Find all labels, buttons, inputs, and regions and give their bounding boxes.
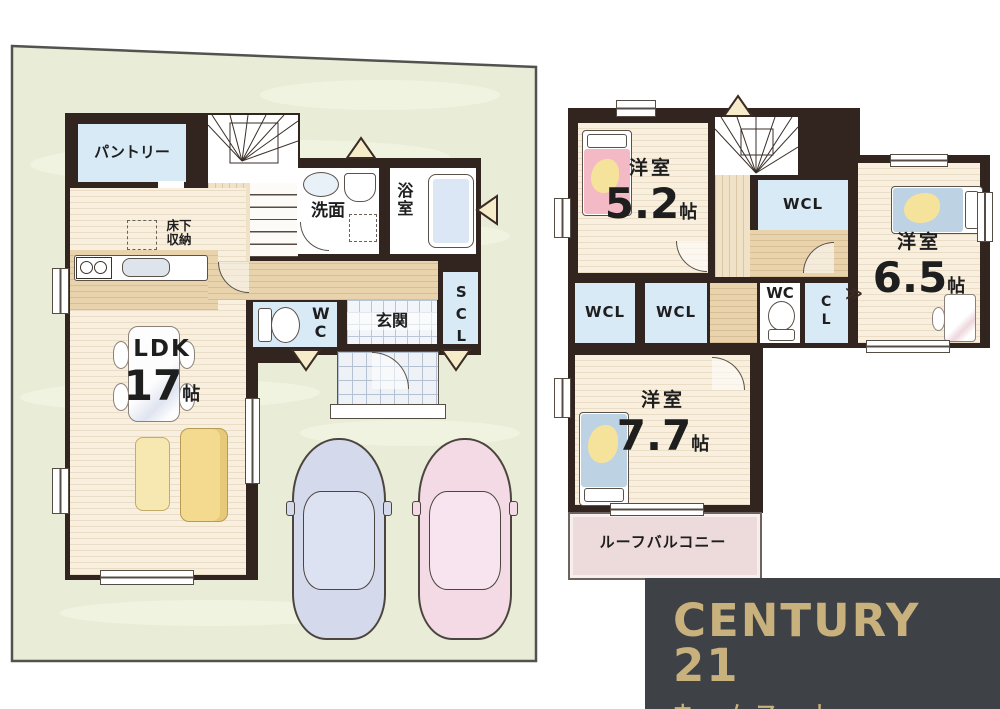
ldk-size: 17 (124, 361, 182, 410)
bedroom-6-5-label: 洋室 6.5帖 (866, 232, 972, 302)
floor-plan-sheet: パントリー 床下 収納 (0, 0, 1000, 709)
wcl-a-label: WCL (575, 304, 635, 321)
vent-triangle-icon (290, 348, 322, 372)
window (554, 378, 571, 418)
bed-icon (891, 186, 983, 234)
washroom-label: 洗面 (297, 202, 359, 222)
window (890, 154, 948, 167)
bedroom-7-7-name: 洋室 (608, 390, 718, 412)
bedroom-7-7-label: 洋室 7.7帖 (608, 390, 718, 460)
bathtub-icon (428, 174, 474, 248)
ldk-name: LDK (112, 336, 212, 362)
desk-chair-icon (932, 307, 945, 331)
vent-triangle-icon (475, 194, 499, 226)
wc-1f-label: WC (312, 305, 329, 342)
vent-triangle-icon (722, 94, 754, 118)
bed-headboard (587, 134, 627, 148)
bedroom-5-2-size: 5.2 (605, 179, 679, 228)
window (616, 100, 656, 117)
window (52, 268, 69, 314)
toilet-bowl-icon (768, 301, 795, 331)
bedroom-5-2-unit: 帖 (679, 202, 697, 223)
bedroom-7-7-size: 7.7 (617, 411, 691, 460)
window (866, 340, 950, 353)
ldk-label: LDK 17帖 (112, 336, 212, 411)
bedroom-5-2-name: 洋室 (598, 158, 704, 180)
toilet-tank-icon (258, 308, 272, 342)
washbasin-icon (303, 172, 339, 197)
car-pink (418, 438, 512, 640)
window (100, 570, 194, 585)
window (977, 192, 993, 242)
kitchen-sink-icon (122, 258, 170, 277)
vent-triangle-icon (440, 348, 472, 372)
window (245, 398, 260, 484)
sofa-ottoman (135, 437, 170, 511)
wcl-b-label: WCL (645, 304, 707, 321)
underfloor-line1: 床下 (158, 219, 200, 233)
shoe-closet-label: SCL (452, 283, 469, 349)
bathroom-label: 浴室 (394, 182, 412, 218)
entrance-label: 玄関 (347, 312, 437, 330)
sofa (180, 428, 228, 522)
underfloor-storage-label: 床下 収納 (158, 219, 200, 248)
bedroom-6-5-size: 6.5 (873, 253, 947, 302)
bedroom-5-2-label: 洋室 5.2帖 (598, 158, 704, 228)
underfloor-storage-hatch (127, 220, 157, 250)
wcl-top-label: WCL (758, 196, 848, 213)
agency-logo: CENTURY 21 ホームマート (645, 578, 1000, 709)
ldk-unit: 帖 (182, 384, 200, 405)
2f-corridor (710, 283, 757, 343)
vent-triangle-icon (345, 136, 377, 160)
window (610, 503, 704, 516)
roof-balcony-label: ルーフバルコニー (568, 534, 758, 551)
1f-staircase-fan (208, 115, 298, 183)
pantry-label: パントリー (78, 144, 186, 161)
bed-headboard (584, 488, 624, 502)
toilet-tank-icon (768, 329, 795, 341)
washing-machine-icon (344, 173, 376, 202)
1f-stair-run (250, 183, 298, 257)
car-cabin (303, 491, 375, 590)
2f-stair-hall (715, 175, 750, 277)
2f-staircase-fan (715, 117, 798, 175)
underfloor-line2: 収納 (158, 233, 200, 247)
wc-2f-label: WC (760, 285, 800, 302)
bedroom-7-7-unit: 帖 (691, 434, 709, 455)
toilet-bowl-icon (271, 307, 300, 343)
desk-icon (944, 294, 976, 342)
logo-shop-name: ホームマート (673, 698, 1000, 709)
cl-label: CL (818, 294, 834, 330)
porch-step (330, 404, 446, 419)
car-cabin (429, 491, 501, 590)
window (554, 198, 571, 238)
bedroom-6-5-name: 洋室 (866, 232, 972, 254)
car-blue (292, 438, 386, 640)
logo-brand-text: CENTURY 21 (673, 598, 1000, 688)
window (52, 468, 69, 514)
stove-icon (76, 257, 112, 279)
opening-chevron-icon: ≫ (845, 284, 863, 304)
